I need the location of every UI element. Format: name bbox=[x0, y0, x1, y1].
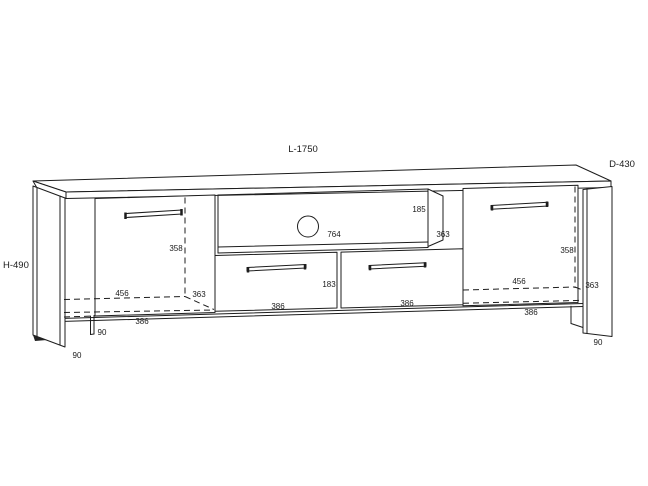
dim-shelf-width: 764 bbox=[327, 230, 341, 239]
dim-right-panel-leg: 90 bbox=[594, 338, 603, 347]
dim-left-door-height: 358 bbox=[169, 244, 183, 253]
dim-right-drawer-width: 386 bbox=[400, 299, 414, 308]
dim-left-door-swing: 363 bbox=[192, 290, 206, 299]
left-side-panel bbox=[33, 186, 65, 347]
dim-right-door-height: 358 bbox=[560, 246, 574, 255]
dim-shelf-depth: 363 bbox=[436, 230, 450, 239]
dim-left-door-opening: 386 bbox=[135, 317, 149, 326]
dim-shelf-height: 185 bbox=[412, 205, 426, 214]
dim-left-drawer-width: 386 bbox=[271, 302, 285, 311]
cable-hole bbox=[298, 216, 319, 237]
tv-stand-technical-drawing: L-1750 D-430 H-490 185 764 363 358 358 4… bbox=[0, 0, 648, 486]
label-height: H-490 bbox=[3, 260, 29, 271]
front-left-leg bbox=[91, 316, 95, 335]
right-inner-leg bbox=[571, 306, 583, 327]
dim-left-panel-leg: 90 bbox=[73, 351, 82, 360]
dim-right-door-opening: 386 bbox=[524, 308, 538, 317]
dim-left-door-width: 456 bbox=[115, 289, 129, 298]
dim-drawer-height: 183 bbox=[322, 280, 336, 289]
dim-front-left-leg: 90 bbox=[98, 328, 107, 337]
open-shelf bbox=[218, 189, 443, 253]
label-depth: D-430 bbox=[609, 159, 635, 170]
dim-right-door-width: 456 bbox=[512, 277, 526, 286]
drawing-canvas: L-1750 D-430 H-490 185 764 363 358 358 4… bbox=[0, 0, 648, 486]
dim-right-door-swing: 363 bbox=[585, 281, 599, 290]
label-length: L-1750 bbox=[288, 144, 318, 155]
